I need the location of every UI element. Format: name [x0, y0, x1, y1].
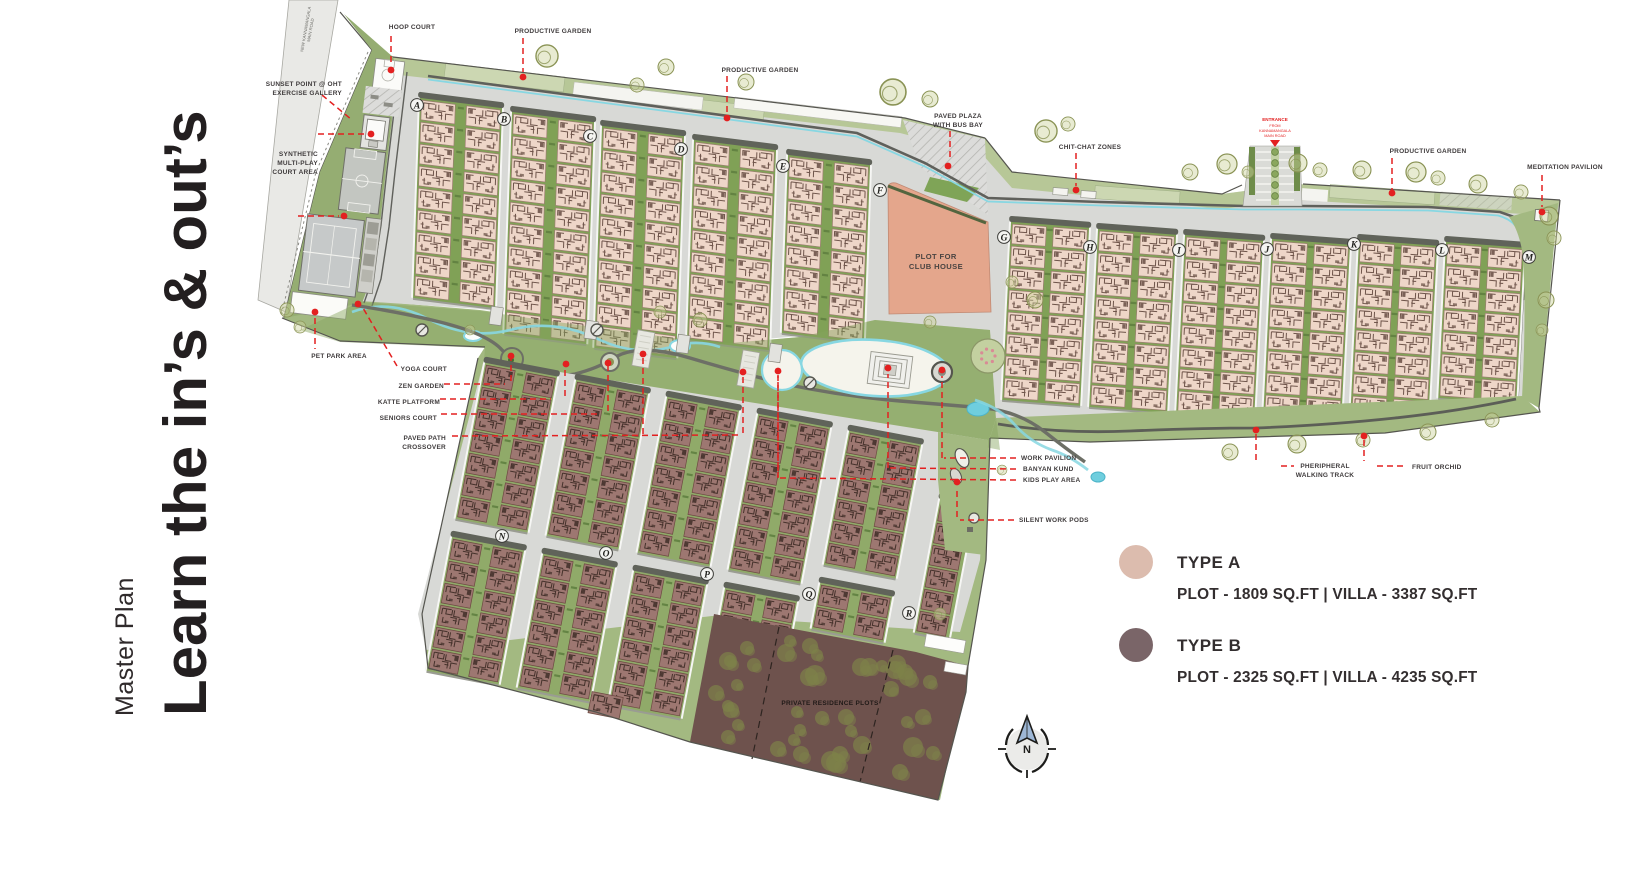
svg-text:WORK PAVILION: WORK PAVILION	[1021, 455, 1076, 462]
svg-text:PRODUCTIVE GARDEN: PRODUCTIVE GARDEN	[1390, 148, 1467, 155]
svg-text:M: M	[1524, 254, 1534, 264]
svg-text:B: B	[500, 116, 507, 126]
svg-text:TYPE A: TYPE A	[1177, 553, 1241, 572]
svg-text:PHERIPHERAL: PHERIPHERAL	[1300, 463, 1349, 470]
svg-text:WITH BUS BAY: WITH BUS BAY	[933, 122, 983, 129]
svg-text:SILENT WORK PODS: SILENT WORK PODS	[1019, 517, 1089, 524]
svg-text:COURT AREA: COURT AREA	[272, 169, 318, 176]
svg-text:MEDITATION PAVILION: MEDITATION PAVILION	[1527, 164, 1603, 171]
svg-text:KATTE PLATFORM: KATTE PLATFORM	[378, 399, 440, 406]
svg-text:PAVED PLAZA: PAVED PLAZA	[934, 113, 982, 120]
svg-text:P: P	[704, 571, 710, 581]
svg-text:PLOT FOR: PLOT FOR	[915, 252, 957, 261]
svg-text:CROSSOVER: CROSSOVER	[402, 444, 446, 451]
svg-text:PLOT - 2325 SQ.FT | VILLA - 42: PLOT - 2325 SQ.FT | VILLA - 4235 SQ.FT	[1177, 669, 1478, 686]
svg-text:EXERCISE GALLERY: EXERCISE GALLERY	[273, 90, 343, 97]
svg-text:ENTRANCE: ENTRANCE	[1262, 117, 1288, 122]
svg-text:MAIN ROAD: MAIN ROAD	[1264, 134, 1286, 138]
svg-text:WALKING TRACK: WALKING TRACK	[1296, 472, 1355, 479]
svg-text:TYPE B: TYPE B	[1177, 636, 1241, 655]
svg-text:A: A	[413, 102, 420, 112]
svg-text:K: K	[1350, 241, 1358, 251]
svg-text:HOOP COURT: HOOP COURT	[389, 24, 435, 31]
svg-text:YOGA COURT: YOGA COURT	[401, 366, 447, 373]
svg-text:ZEN GARDEN: ZEN GARDEN	[399, 383, 445, 390]
svg-text:F: F	[876, 187, 884, 197]
svg-text:FROM: FROM	[1269, 124, 1280, 128]
svg-text:BANYAN KUND: BANYAN KUND	[1023, 466, 1074, 473]
svg-text:PAVED PATH: PAVED PATH	[404, 435, 447, 442]
svg-text:Q: Q	[806, 591, 813, 601]
svg-text:CHIT-CHAT ZONES: CHIT-CHAT ZONES	[1059, 144, 1122, 151]
svg-text:D: D	[677, 146, 685, 156]
svg-text:R: R	[905, 610, 912, 620]
svg-text:FRUIT ORCHID: FRUIT ORCHID	[1412, 464, 1462, 471]
svg-text:KANNAMANGALA: KANNAMANGALA	[1259, 129, 1291, 133]
svg-text:SENIORS COURT: SENIORS COURT	[380, 415, 437, 422]
svg-text:PRODUCTIVE GARDEN: PRODUCTIVE GARDEN	[722, 67, 799, 74]
svg-text:SYNTHETIC: SYNTHETIC	[279, 151, 318, 158]
svg-text:PLOT - 1809 SQ.FT | VILLA - 33: PLOT - 1809 SQ.FT | VILLA - 3387 SQ.FT	[1177, 586, 1478, 603]
svg-text:PRIVATE RESIDENCE PLOTS: PRIVATE RESIDENCE PLOTS	[781, 700, 879, 707]
svg-text:N: N	[498, 533, 507, 543]
svg-text:E: E	[779, 163, 786, 173]
svg-text:C: C	[587, 133, 594, 143]
svg-text:PRODUCTIVE GARDEN: PRODUCTIVE GARDEN	[515, 28, 592, 35]
svg-text:CLUB HOUSE: CLUB HOUSE	[909, 262, 963, 271]
svg-text:KIDS PLAY AREA: KIDS PLAY AREA	[1023, 477, 1080, 484]
svg-text:N: N	[1023, 744, 1031, 756]
svg-text:G: G	[1001, 234, 1008, 244]
svg-text:SUNSET POINT @ OHT: SUNSET POINT @ OHT	[266, 81, 342, 88]
svg-text:H: H	[1085, 244, 1094, 254]
svg-text:O: O	[603, 550, 610, 560]
svg-text:J: J	[1264, 246, 1270, 256]
svg-text:PET PARK AREA: PET PARK AREA	[311, 353, 367, 360]
svg-text:MULTI-PLAY: MULTI-PLAY	[277, 160, 318, 167]
svg-text:I: I	[1176, 247, 1181, 257]
svg-text:L: L	[1438, 247, 1445, 257]
